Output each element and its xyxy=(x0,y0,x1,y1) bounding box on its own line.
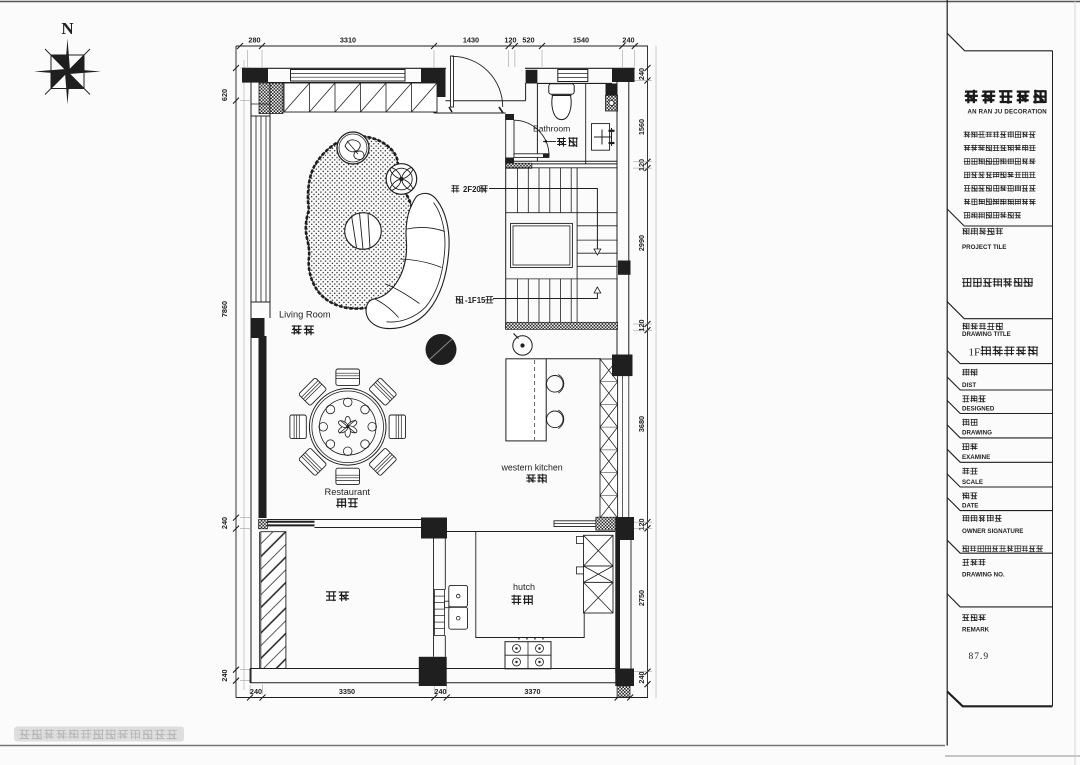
svg-text:Bathroom: Bathroom xyxy=(533,124,570,134)
svg-text:1430: 1430 xyxy=(463,36,479,45)
svg-text:DATE: DATE xyxy=(962,502,978,509)
svg-text:240: 240 xyxy=(637,68,646,80)
svg-text:AN RAN JU DECORATION: AN RAN JU DECORATION xyxy=(968,109,1047,116)
svg-text:DIST: DIST xyxy=(962,382,976,389)
svg-text:280: 280 xyxy=(248,36,260,45)
svg-text:120: 120 xyxy=(637,319,646,331)
svg-text:REMARK: REMARK xyxy=(962,627,990,634)
svg-text:western kitchen: western kitchen xyxy=(501,463,563,473)
svg-text:240: 240 xyxy=(220,517,229,529)
svg-text:SCALE: SCALE xyxy=(962,479,983,486)
svg-text:3350: 3350 xyxy=(339,687,355,696)
svg-text:2F20: 2F20 xyxy=(463,185,481,194)
svg-text:1560: 1560 xyxy=(637,119,646,135)
svg-text:240: 240 xyxy=(434,687,446,696)
svg-text:87.9: 87.9 xyxy=(969,652,990,662)
svg-text:DRAWING NO.: DRAWING NO. xyxy=(962,572,1005,579)
svg-text:120: 120 xyxy=(637,159,646,171)
svg-text:620: 620 xyxy=(220,89,229,101)
svg-text:1F: 1F xyxy=(969,347,981,359)
svg-text:hutch: hutch xyxy=(513,582,535,592)
svg-text:1540: 1540 xyxy=(573,36,589,45)
svg-text:Restaurant: Restaurant xyxy=(325,487,371,497)
svg-text:120: 120 xyxy=(504,36,516,45)
svg-text:PROJECT TILE: PROJECT TILE xyxy=(962,244,1006,251)
svg-text:240: 240 xyxy=(637,671,646,683)
svg-text:DESIGNED: DESIGNED xyxy=(962,405,995,412)
svg-text:DRAWING: DRAWING xyxy=(962,430,992,437)
svg-text:240: 240 xyxy=(250,687,262,696)
svg-text:120: 120 xyxy=(637,518,646,530)
svg-text:7860: 7860 xyxy=(220,301,229,317)
svg-text:3310: 3310 xyxy=(340,36,356,45)
svg-text:2990: 2990 xyxy=(637,235,646,251)
svg-text:3370: 3370 xyxy=(524,687,540,696)
svg-text:OWNER SIGNATURE: OWNER SIGNATURE xyxy=(962,528,1023,535)
svg-text:N: N xyxy=(61,19,74,38)
svg-text:DRAWING TITLE: DRAWING TITLE xyxy=(962,331,1011,338)
svg-text:240: 240 xyxy=(220,669,229,681)
svg-text:-1F15: -1F15 xyxy=(465,296,486,305)
svg-text:EXAMINE: EXAMINE xyxy=(962,454,990,461)
svg-text:3680: 3680 xyxy=(637,416,646,432)
svg-text:520: 520 xyxy=(522,36,534,45)
svg-text:Living Room: Living Room xyxy=(279,310,331,320)
svg-text:240: 240 xyxy=(622,36,634,45)
svg-text:2750: 2750 xyxy=(637,590,646,606)
